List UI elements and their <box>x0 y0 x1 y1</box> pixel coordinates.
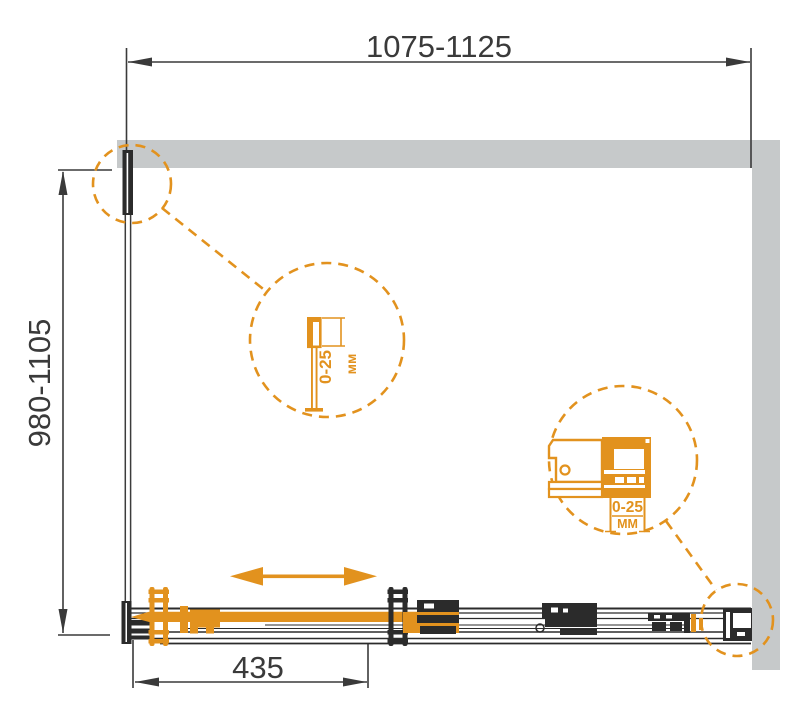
wall-profile-unit-label: мм <box>343 354 359 375</box>
wall-profile-range-label: 0-25 <box>316 350 335 384</box>
dim-width-label: 1075-1125 <box>366 29 512 64</box>
roller-carriage-1 <box>403 600 459 634</box>
technical-drawing-page: 1075-1125 980-1105 435 <box>0 0 800 713</box>
detail-circle-wall-profile <box>250 263 404 417</box>
dimension-height <box>58 170 112 635</box>
roller-range-label: 0-25 <box>612 499 643 516</box>
dim-height-label: 980-1105 <box>22 319 57 448</box>
wall-top <box>117 140 780 168</box>
dim-door-label: 435 <box>232 650 284 685</box>
slide-direction-double-arrow-icon <box>230 567 377 586</box>
left-glass-panel <box>123 150 134 608</box>
shower-enclosure-diagram: 1075-1125 980-1105 435 <box>0 0 800 713</box>
bottom-wall-profile <box>122 601 153 644</box>
rail-fitting-group <box>648 613 703 633</box>
wall-profile-detail: 0-25 мм <box>305 317 359 412</box>
roller-detail: 0-25 ММ <box>549 437 651 532</box>
detail-connector-bottom <box>666 521 716 590</box>
door-panel-bar <box>131 612 427 622</box>
roller-unit-label: ММ <box>617 517 638 531</box>
end-wall-bracket <box>723 608 752 641</box>
detail-circles <box>93 145 773 656</box>
door-clamp-block <box>180 606 220 634</box>
roller-carriage-2 <box>536 603 597 635</box>
detail-connector-top <box>162 208 267 292</box>
